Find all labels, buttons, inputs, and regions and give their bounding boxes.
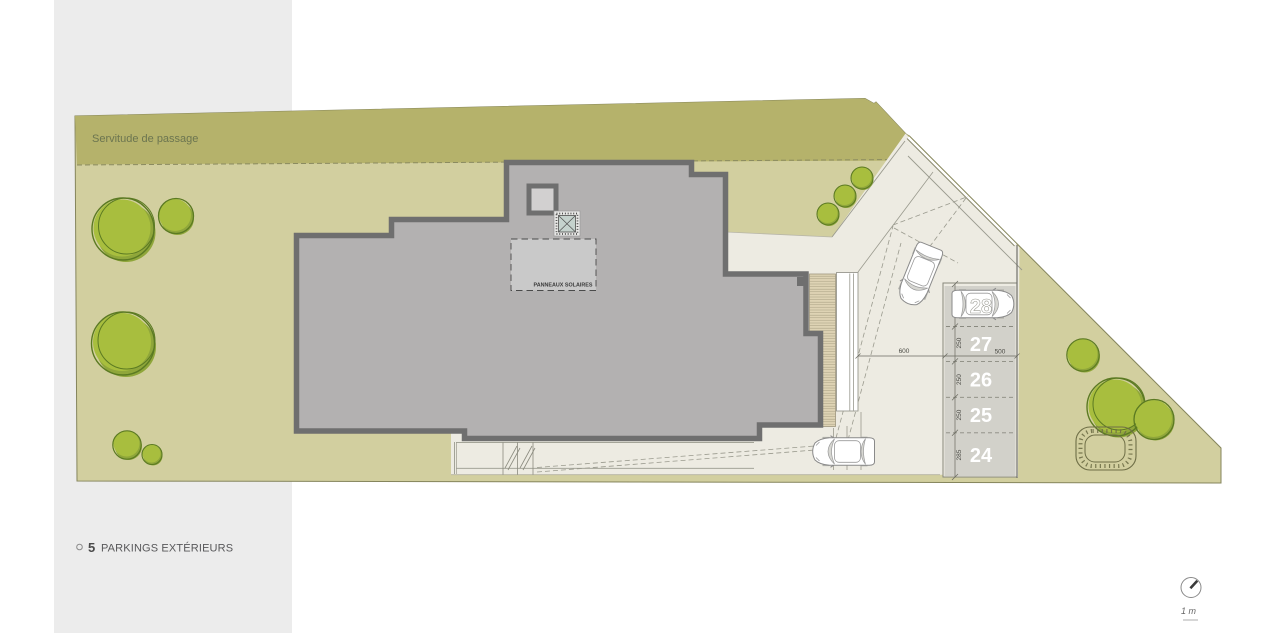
- svg-text:PANNEAUX SOLAIRES: PANNEAUX SOLAIRES: [534, 283, 593, 289]
- svg-text:250: 250: [956, 337, 963, 348]
- svg-text:500: 500: [995, 349, 1006, 356]
- svg-text:26: 26: [970, 370, 992, 392]
- svg-text:285: 285: [956, 449, 963, 460]
- svg-text:28: 28: [970, 296, 992, 318]
- svg-text:Servitude de passage: Servitude de passage: [92, 133, 198, 145]
- svg-text:PARKINGS EXTÉRIEURS: PARKINGS EXTÉRIEURS: [101, 542, 233, 555]
- svg-text:250: 250: [956, 409, 963, 420]
- svg-text:250: 250: [956, 374, 963, 385]
- svg-text:25: 25: [970, 405, 992, 427]
- svg-text:5: 5: [88, 540, 95, 555]
- svg-text:1 m: 1 m: [1181, 606, 1197, 616]
- svg-text:24: 24: [970, 445, 993, 467]
- svg-text:600: 600: [899, 348, 910, 355]
- svg-text:27: 27: [970, 334, 992, 356]
